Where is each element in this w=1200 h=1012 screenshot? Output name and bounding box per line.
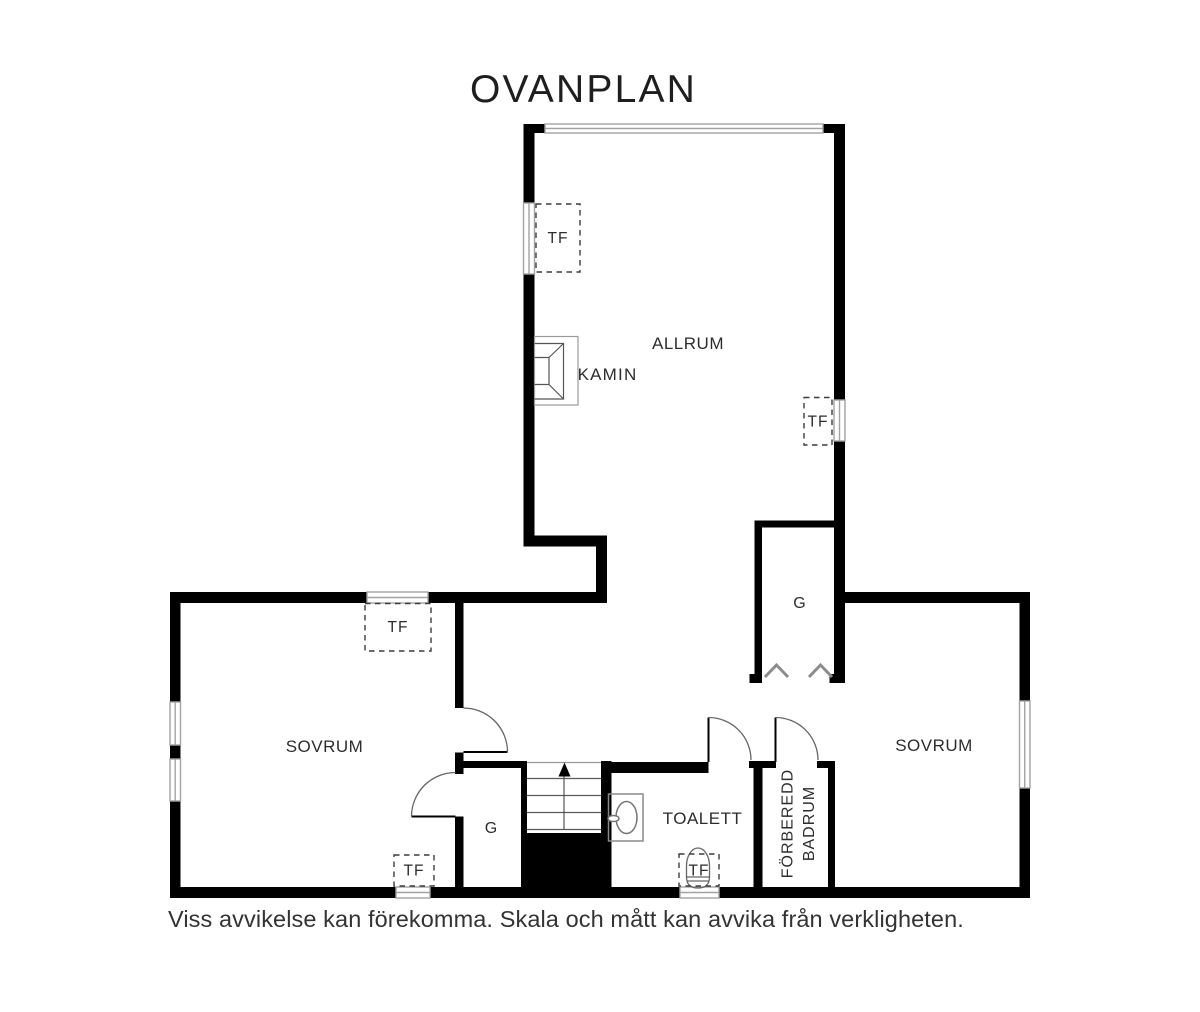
svg-text:G: G [793,595,805,612]
svg-text:BADRUM: BADRUM [801,786,818,861]
svg-text:Viss avvikelse kan förekomma.: Viss avvikelse kan förekomma. Skala och … [168,906,964,932]
svg-text:TF: TF [388,619,409,636]
svg-text:ALLRUM: ALLRUM [652,334,724,353]
svg-text:SOVRUM: SOVRUM [895,736,973,755]
svg-text:OVANPLAN: OVANPLAN [470,68,697,111]
svg-text:TF: TF [548,230,569,247]
svg-text:G: G [485,820,497,837]
svg-text:SOVRUM: SOVRUM [286,737,364,756]
svg-text:FÖRBEREDD: FÖRBEREDD [779,769,797,878]
svg-text:TF: TF [404,863,425,880]
svg-text:TF: TF [689,863,710,880]
svg-text:KAMIN: KAMIN [578,365,638,384]
svg-text:TF: TF [808,414,829,431]
svg-text:TOALETT: TOALETT [663,809,743,828]
